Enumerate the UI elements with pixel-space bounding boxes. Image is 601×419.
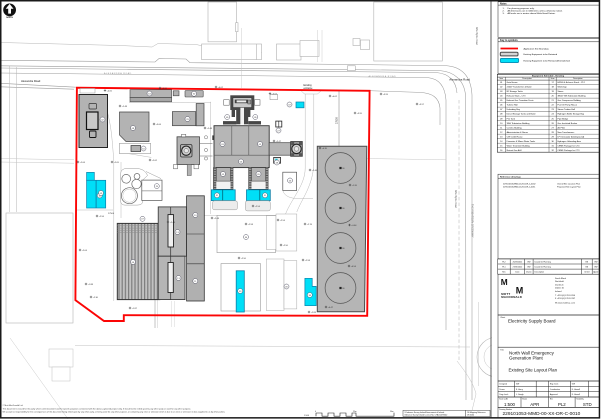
svg-text:+3.99: +3.99 (383, 94, 389, 96)
svg-text:LP Interceptor (Underground): LP Interceptor (Underground) (558, 135, 585, 138)
svg-text:GW: GW (516, 384, 519, 386)
svg-text:Description: Description (535, 271, 544, 274)
svg-text:Equipment Schedule - Existing: Equipment Schedule - Existing (532, 75, 565, 78)
svg-text:STD: STD (583, 402, 592, 407)
svg-text:CW Outlet House: CW Outlet House (507, 135, 524, 138)
svg-text:Reference drawings: Reference drawings (500, 176, 522, 178)
svg-text:+2.48: +2.48 (122, 106, 128, 108)
svg-text:Gas Compressor Building: Gas Compressor Building (558, 99, 581, 102)
svg-text:Exhaust Stack - CT3: Exhaust Stack - CT3 (507, 95, 527, 98)
svg-text:Existing Equipment to be Retai: Existing Equipment to be Retained (524, 53, 558, 56)
svg-text:Application Site Boundary: Application Site Boundary (524, 47, 550, 50)
svg-text:ALEXANDRA ROAD: ALEXANDRA ROAD (369, 75, 397, 78)
svg-text:Pipe Bridge: Pipe Bridge (558, 117, 569, 120)
svg-text:+1.88: +1.88 (88, 284, 94, 286)
svg-text:Comms Building: Comms Building (507, 127, 522, 129)
svg-text:NORTH: NORTH (6, 17, 13, 19)
svg-text:Status: Status (522, 398, 527, 401)
svg-text:0: 0 (315, 411, 316, 413)
svg-text:220kV Transformer & Bund: 220kV Transformer & Bund (507, 86, 532, 89)
svg-text:+2.48: +2.48 (214, 218, 220, 220)
svg-text:Description: Description (573, 77, 582, 80)
svg-text:+2.04: +2.04 (82, 250, 88, 252)
svg-text:Stores: Stores (558, 90, 564, 93)
svg-text:+2.54: +2.54 (255, 206, 261, 208)
svg-text:M: M (516, 285, 524, 295)
svg-text:ALEXANDRA ROAD: ALEXANDRA ROAD (104, 72, 132, 75)
svg-text:Air Filter: Air Filter (558, 126, 566, 129)
svg-text:Administration & Stores: Administration & Stores (507, 131, 528, 134)
svg-text:W www.mottmac.com: W www.mottmac.com (555, 302, 575, 305)
svg-text:+2.46: +2.46 (312, 170, 318, 172)
svg-text:+4.05: +4.05 (107, 90, 113, 92)
svg-text:Date: Date (515, 271, 519, 274)
svg-text:+0.35: +0.35 (322, 148, 328, 150)
svg-text:+4.00: +4.00 (162, 88, 168, 90)
svg-text:Rev: Rev (502, 272, 505, 274)
svg-text:Fire Tank: Fire Tank (507, 117, 516, 120)
svg-text:+2.46: +2.46 (170, 222, 176, 224)
svg-text:229101053-MMD-00-XX-DR-C-0011: 229101053-MMD-00-XX-DR-C-0011 (503, 187, 536, 189)
svg-text:+1.20: +1.20 (352, 185, 358, 187)
svg-text:+2.83: +2.83 (311, 312, 317, 314)
svg-text:PL2: PL2 (502, 261, 505, 263)
svg-text:Eng check: Eng check (550, 384, 558, 386)
svg-text:Water Treatment Building: Water Treatment Building (507, 144, 530, 147)
svg-text:GW: GW (527, 267, 530, 269)
svg-text:27500: 27500 (336, 117, 339, 124)
svg-text:Dublin 16: Dublin 16 (555, 288, 565, 290)
svg-text:OS Mapping Reference: OS Mapping Reference (467, 412, 486, 414)
svg-text:+0.47: +0.47 (328, 307, 334, 309)
svg-text:Generation Plant: Generation Plant (509, 355, 544, 360)
svg-text:Designed: Designed (500, 384, 508, 386)
svg-text:+3.95: +3.95 (357, 113, 363, 115)
svg-text:+2.05: +2.05 (114, 162, 120, 164)
svg-text:We accept no responsibility fo: We accept no responsibility for the cons… (3, 410, 226, 413)
svg-text:Existing Equipment to be Remov: Existing Equipment to be Removed/Demolis… (524, 59, 571, 62)
svg-text:Scale at A1: Scale at A1 (499, 398, 508, 401)
svg-text:Existing Site Layout Plan: Existing Site Layout Plan (509, 367, 558, 372)
svg-text:+2.54: +2.54 (280, 220, 286, 222)
svg-text:Workshop: Workshop (558, 86, 568, 89)
svg-text:Dwg check: Dwg check (500, 394, 509, 396)
svg-text:25m: 25m (353, 411, 357, 413)
svg-text:Hydrogen Bottle Storage Bay: Hydrogen Bottle Storage Bay (558, 113, 585, 116)
svg-text:F +353 (0)1 291 6747: F +353 (0)1 291 6747 (555, 298, 576, 300)
svg-text:+2.30: +2.30 (93, 297, 99, 299)
svg-text:HRSG & Exhaust Stack - CT4: HRSG & Exhaust Stack - CT4 (558, 81, 586, 84)
svg-text:PL1: PL1 (502, 267, 505, 269)
svg-text:Electricity Supply Board: Electricity Supply Board (508, 318, 556, 323)
svg-text:Drawn: Drawn (500, 389, 505, 391)
svg-text:Unloading Bay: Unloading Bay (507, 109, 521, 111)
svg-text:1:500: 1:500 (304, 415, 310, 417)
svg-text:Proposed Site Layout Plan: Proposed Site Layout Plan (557, 186, 581, 189)
svg-text:Issued for Planning: Issued for Planning (535, 266, 551, 269)
svg-text:L. Gough: L. Gough (516, 394, 524, 396)
svg-text:Key to symbols: Key to symbols (500, 39, 518, 42)
svg-text:Firewater & 38mm Water Tanks: Firewater & 38mm Water Tanks (507, 140, 536, 143)
svg-text:Rockfield: Rockfield (555, 281, 564, 283)
svg-text:+2.48: +2.48 (207, 128, 213, 130)
svg-text:+2.50: +2.50 (241, 258, 247, 260)
svg-text:+1.87: +1.87 (132, 308, 138, 310)
svg-text:Existing: Existing (304, 84, 313, 87)
svg-text:Rev: Rev (550, 399, 553, 401)
svg-text:50m: 50m (390, 411, 394, 413)
svg-text:27/01/2022: 27/01/2022 (513, 267, 522, 269)
svg-text:27500: 27500 (108, 213, 115, 215)
svg-text:Alexandra Road: Alexandra Road (21, 79, 41, 83)
svg-text:M: M (501, 277, 508, 287)
svg-text:Alexandra Road: Alexandra Road (449, 77, 470, 81)
svg-text:New Transformers: New Transformers (558, 131, 575, 134)
svg-text:Ireland: Ireland (555, 290, 562, 293)
svg-text:Natural Gas AGI: Natural Gas AGI (507, 149, 522, 152)
svg-text:+0.02: +0.02 (332, 96, 338, 98)
svg-text:+4.02: +4.02 (218, 87, 224, 89)
svg-text:Ordnance Survey Ireland Licenc: Ordnance Survey Ireland Licence No. CYAL… (404, 414, 447, 417)
svg-text:380kV GIS Substation Building: 380kV GIS Substation Building (558, 95, 586, 98)
svg-text:CEMS Package for CT4: CEMS Package for CT4 (558, 144, 581, 147)
svg-text:Turbine Hall: Turbine Hall (507, 104, 519, 107)
svg-text:+2.47: +2.47 (276, 141, 282, 143)
svg-text:PL2: PL2 (558, 402, 566, 407)
svg-text:Gate House: Gate House (507, 81, 519, 84)
svg-text:GW: GW (527, 261, 530, 263)
svg-text:229101053-MMD-00-XX-DR-C-0010: 229101053-MMD-00-XX-DR-C-0010 (503, 411, 581, 417)
svg-text:Overall Site Location Plan: Overall Site Location Plan (557, 183, 580, 186)
svg-text:N2 Storage Tanks: N2 Storage Tanks (507, 90, 523, 93)
svg-text:229101053-MMD-00-XX-DR-C-0002: 229101053-MMD-00-XX-DR-C-0002 (503, 184, 536, 186)
svg-text:+2.58: +2.58 (305, 260, 311, 262)
svg-text:1:500: 1:500 (504, 402, 516, 407)
svg-text:GW: GW (594, 267, 597, 269)
svg-text:Item: Item (499, 77, 503, 80)
svg-text:All levels are in metres above: All levels are in metres above Malin Hea… (508, 12, 556, 15)
svg-text:App'd: App'd (593, 271, 598, 274)
svg-text:Approved: Approved (550, 393, 558, 396)
svg-text:Notes: Notes (500, 2, 507, 5)
svg-text:MACDONALD: MACDONALD (501, 295, 522, 299)
svg-text:+2.58: +2.58 (248, 224, 254, 226)
svg-text:+3.06: +3.06 (156, 124, 162, 126)
svg-text:©Ordnance Survey Ireland/Gover: ©Ordnance Survey Ireland/Government of I… (404, 411, 445, 414)
svg-text:Diesel Storage Tanks and Bund: Diesel Storage Tanks and Bund (507, 113, 536, 116)
svg-text:+2.50: +2.50 (283, 245, 289, 247)
svg-text:THE IRISHTOWN GREENWAY: THE IRISHTOWN GREENWAY (471, 204, 474, 238)
svg-text:GW: GW (594, 261, 597, 263)
svg-text:+2.62: +2.62 (152, 160, 158, 162)
svg-text:This document is issued for th: This document is issued for the party wh… (3, 407, 192, 410)
svg-text:OS 3264: OS 3264 (467, 415, 474, 417)
svg-text:Dundrum: Dundrum (555, 283, 564, 286)
svg-text:38kV Substation Building: 38kV Substation Building (507, 122, 530, 125)
svg-text:Issued for Planning: Issued for Planning (535, 260, 551, 263)
svg-text:+2.56: +2.56 (99, 216, 105, 218)
svg-text:+4.02: +4.02 (272, 93, 278, 95)
svg-text:Title: Title (500, 349, 504, 352)
svg-text:entrance: entrance (304, 87, 314, 90)
svg-text:Steam Turbine Hall: Steam Turbine Hall (558, 108, 576, 111)
svg-text:D. Howell: D. Howell (572, 394, 581, 396)
svg-text:APR: APR (530, 402, 539, 407)
svg-text:Item: Item (551, 77, 555, 80)
svg-text:Coordination: Coordination (550, 388, 560, 391)
svg-text:+3.97: +3.97 (419, 104, 425, 106)
svg-text:Drawing Number: Drawing Number (499, 408, 512, 411)
svg-text:+0.54: +0.54 (351, 266, 357, 268)
svg-text:South Block: South Block (555, 277, 567, 280)
svg-text:S. Harry: S. Harry (516, 388, 523, 391)
svg-text:Client: Client (500, 316, 505, 319)
svg-text:Drawn: Drawn (526, 271, 531, 274)
svg-text:Exhaust Gas Transition Ducts: Exhaust Gas Transition Ducts (507, 99, 534, 102)
svg-text:Suitability: Suitability (576, 398, 583, 401)
svg-text:D. Howell: D. Howell (572, 389, 581, 391)
svg-text:© Mott MacDonald Ltd.: © Mott MacDonald Ltd. (3, 404, 24, 407)
svg-text:Alfie Byrne Road: Alfie Byrne Road (454, 190, 457, 209)
svg-text:T +353 (0)1 291 6700: T +353 (0)1 291 6700 (555, 295, 576, 297)
svg-text:+2.64: +2.64 (80, 162, 86, 164)
svg-text:20/05/2022: 20/05/2022 (513, 261, 522, 263)
svg-text:+0.64: +0.64 (351, 225, 357, 227)
svg-text:Fuel Oil Pump House: Fuel Oil Pump House (558, 105, 578, 107)
svg-text:+2.76: +2.76 (307, 224, 313, 226)
svg-text:CEMS Package for CT3: CEMS Package for CT3 (558, 149, 581, 152)
svg-text:Alfie Byrne Road: Alfie Byrne Road (475, 27, 478, 46)
svg-text:Gas Insulated Busbar: Gas Insulated Busbar (558, 122, 578, 125)
svg-text:Hydrogen Unloading Area: Hydrogen Unloading Area (558, 140, 582, 143)
svg-text:GW: GW (572, 384, 575, 386)
svg-text:Ch'k'd: Ch'k'd (584, 272, 589, 274)
svg-text:Description: Description (522, 77, 531, 80)
